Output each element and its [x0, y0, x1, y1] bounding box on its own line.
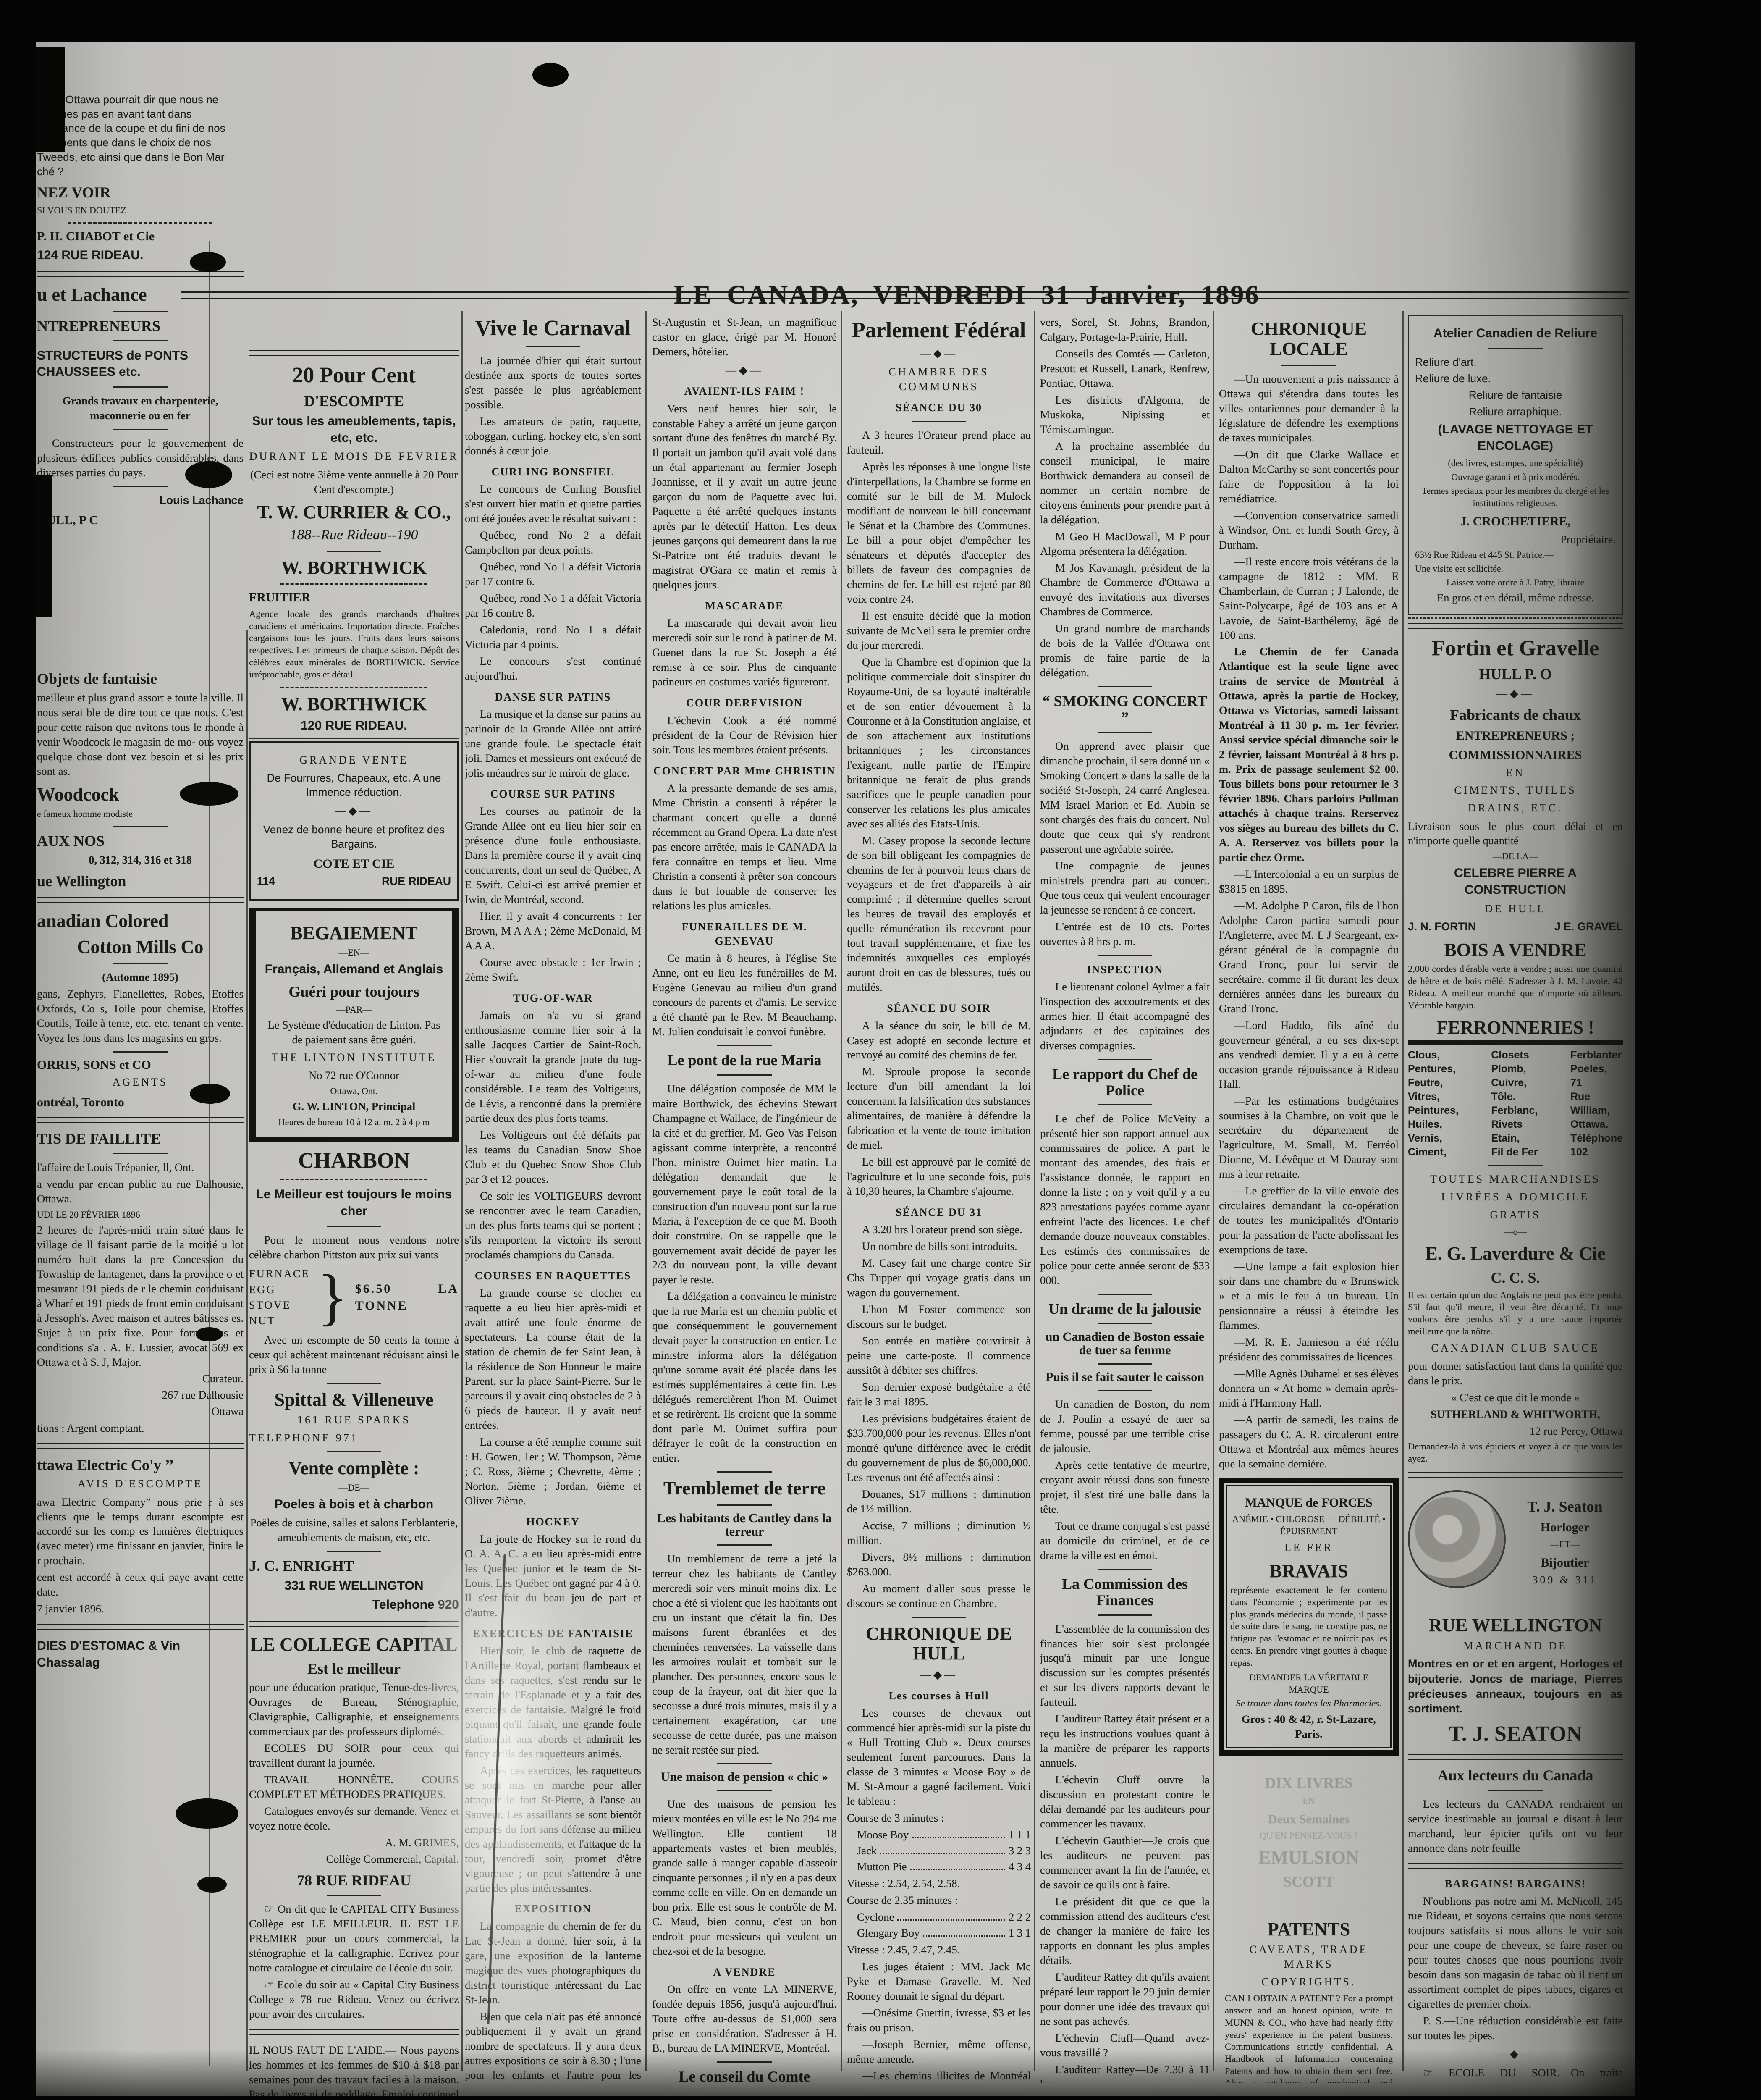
small-centered-line: Heures de bureau 10 à 12 a. m. 2 à 4 p m [262, 1116, 446, 1128]
small-centered-line: UDI LE 20 FÉVRIER 1896 [37, 1208, 244, 1221]
article-headline: BRAVAIS [1230, 1561, 1387, 1581]
race-result-value: 4 3 4 [1009, 1859, 1031, 1874]
article-subheadline: Puis il se fait sauter le caisson [1040, 1370, 1210, 1384]
section-subhead: TUG-OF-WAR [465, 991, 641, 1005]
article-paragraph: 2 heures de l'après-midi rrain situé dan… [37, 1223, 244, 1370]
article-paragraph: Divers, 8½ millions ; diminution $263.00… [847, 1550, 1031, 1579]
article-paragraph: Accise, 7 millions ; diminution ½ millio… [847, 1518, 1031, 1548]
fine-print: CAN I OBTAIN A PATENT ? For a prompt ans… [1225, 1992, 1393, 2083]
article-paragraph: M. Casey fait une charge contre Sir Chs … [847, 1256, 1031, 1300]
article-subheadline: un Canadien de Boston essaie de tuer sa … [1040, 1330, 1210, 1357]
column-rule [841, 311, 842, 2071]
ad-line: Venez de bonne heure et profitez des Bar… [257, 822, 451, 851]
ad-line: STRUCTEURS de PONTS CHAUSSEES etc. [37, 347, 244, 381]
article-paragraph: L'échevin Cluff—Quand avez-vous travaill… [1040, 2031, 1210, 2060]
horse-name: Moose Boy [857, 1827, 909, 1842]
dot-leader [912, 1837, 1005, 1838]
coal-grade: FURNACE [249, 1266, 310, 1281]
section-subhead: COUR DEREVISION [652, 696, 837, 710]
article-headline: 20 Pour Cent [249, 364, 459, 387]
article-headline: ue Wellington [37, 873, 244, 890]
article-paragraph: L'échevin Cluff ouvre la discussion en p… [1040, 1772, 1210, 1831]
article-paragraph: L'auditeur Rattey dit qu'ils avaient pré… [1040, 1970, 1210, 2029]
section-subhead: DANSE SUR PATINS [465, 690, 641, 704]
article-headline: Vive le Carnaval [465, 317, 641, 340]
article-paragraph: tions : Argent comptant. [37, 1421, 244, 1436]
small-centered-line: —EN— [262, 946, 446, 958]
divider [327, 1383, 381, 1384]
coal-grade: NUT [249, 1313, 310, 1328]
ad-box: GRANDE VENTEDe Fourrures, Chapeaux, etc.… [249, 741, 459, 901]
article-paragraph: Un nombre de bills sont introduits. [847, 1239, 1031, 1254]
article-paragraph: —Il reste encore trois vétérans de la ca… [1219, 554, 1399, 643]
article-headline: Guéri pour toujours [262, 984, 446, 1000]
name-pair: auLouis Lachance [37, 493, 244, 508]
ink-blob [190, 252, 226, 272]
article-paragraph: Douanes, $17 millions ; diminution de 1½… [847, 1487, 1031, 1516]
article-paragraph: Le bill est approuvé par le comité de l'… [847, 1155, 1031, 1199]
article-paragraph: a vendu par encan public au rue Dalhousi… [37, 1177, 244, 1206]
race-result-line: Moose Boy1 1 1 [857, 1827, 1031, 1842]
article-paragraph: IL NOUS FAUT DE L'AIDE.— Nous payons les… [249, 2043, 459, 2096]
small-centered-line: Ottawa, Ont. [262, 1085, 446, 1097]
article-subheadline: HULL, P C [37, 514, 244, 527]
hardware-list-item: Rivets [1491, 1118, 1538, 1131]
article-paragraph: L'hon M Foster commence son discours sur… [847, 1302, 1031, 1331]
article-paragraph: Les Voltigeurs ont été défaits par les t… [465, 1128, 641, 1186]
article-paragraph: Avec un escompte de 50 cents la tonne à … [249, 1333, 459, 1377]
article-paragraph: A la pressante demande de ses amis, Mme … [652, 781, 837, 913]
divider [113, 486, 168, 487]
small-centered-line: SI VOUS EN DOUTEZ [37, 204, 244, 216]
small-centered-line: EN [1225, 1795, 1393, 1807]
column-city-news: St-Augustin et St-Jean, un magnifique ca… [652, 313, 837, 2083]
article-paragraph: Pour le moment nous vendons notre célèbr… [249, 1233, 459, 1262]
article-headline: “ SMOKING CONCERT ” [1040, 693, 1210, 726]
article-headline: Cotton Mills Co [37, 937, 244, 957]
column-rule [246, 630, 248, 2071]
right-aligned-line: Curateur. [37, 1371, 244, 1386]
article-paragraph: Une des maisons de pension les mieux mon… [652, 1797, 837, 1958]
double-divider [37, 271, 244, 277]
divider [717, 2061, 772, 2063]
centered-line: Poëles de cuisine, salles et salons Ferb… [249, 1515, 459, 1545]
column-rule [1034, 311, 1035, 2071]
ad-box: MANQUE de FORCESANÉMIE • CHLOROSE — DÉBI… [1219, 1478, 1399, 1756]
pocket-watch-illustration [1408, 1490, 1506, 1588]
article-paragraph: Un tremblement de terre a jeté la terreu… [652, 1551, 837, 1757]
dot-leader [923, 1935, 1005, 1937]
article-headline: Le pont de la rue Maria [652, 1052, 837, 1068]
divider [717, 1790, 772, 1791]
centered-line: (Automne 1895) [37, 970, 244, 984]
article-headline: UI [37, 69, 244, 89]
article-paragraph: Après les réponses à une longue liste d'… [847, 459, 1031, 606]
article-paragraph: gans, Zephyrs, Flanellettes, Robes, Etof… [37, 987, 244, 1045]
article-headline: u et Lachance [37, 285, 244, 305]
article-paragraph: La musique et la danse sur patins au pat… [465, 707, 641, 780]
hardware-list-item: Feutre, [1408, 1076, 1459, 1090]
article-headline: CHRONIQUE DE HULL [847, 1624, 1031, 1664]
dot-leader [910, 1869, 1005, 1870]
double-divider [37, 1443, 244, 1449]
divider [1281, 365, 1336, 366]
article-headline: Spittal & Villeneuve [249, 1390, 459, 1410]
article-headline: TIS DE FAILLITE [37, 1131, 244, 1147]
ad-box: PATENTSCAVEATS, TRADE MARKSCOPYRIGHTS.CA… [1219, 1907, 1399, 2083]
ornament-divider [257, 804, 451, 818]
fine-print: représente exactement le fer contenu dan… [1230, 1584, 1387, 1669]
race-result-line: Cyclone2 2 2 [857, 1910, 1031, 1924]
article-paragraph: Vitesse : 2.54, 2.54, 2.58. [847, 1876, 1031, 1891]
coal-grade: EGG [249, 1282, 310, 1297]
article-headline: DIX LIVRES [1225, 1775, 1393, 1791]
centered-line: Gros : 40 & 42, r. St-Lazare, Paris. [1230, 1712, 1387, 1741]
article-subheadline: P. H. CHABOT et Cie [37, 230, 244, 243]
article-paragraph: Un canadien de Boston, du nom de J. Poul… [1040, 1397, 1210, 1456]
article-paragraph: M. Casey propose la seconde lecture de s… [847, 833, 1031, 995]
article-paragraph: meilleur et plus grand assort e toute la… [37, 690, 244, 779]
page-edge-shadow [1564, 42, 1635, 2096]
article-paragraph: —Onésime Guertin, ivresse, $3 et les fra… [847, 2005, 1031, 2035]
hardware-list-column: Clous,Pentures,Feutre,Vitres,Peintures,H… [1408, 1048, 1459, 1159]
divider [113, 386, 168, 388]
coal-grade-list: FURNACEEGGSTOVENUT [249, 1266, 310, 1328]
ink-blob [197, 1877, 227, 1893]
article-paragraph: Les amateurs de patin, raquette, tobogga… [465, 414, 641, 458]
race-result-line: Jack3 2 3 [857, 1843, 1031, 1858]
divider [1098, 686, 1152, 687]
section-subhead: INSPECTION [1040, 963, 1210, 977]
divider [113, 1153, 168, 1154]
section-subhead: A VENDRE [652, 1965, 837, 1979]
double-divider [37, 1117, 244, 1123]
article-paragraph: Vitesse : 2.45, 2.47, 2.45. [847, 1942, 1031, 1957]
divider [1098, 1104, 1152, 1105]
article-paragraph: —A partir de samedi, les trains de passa… [1219, 1412, 1399, 1471]
divider [717, 1544, 772, 1546]
horse-name: Jack [857, 1843, 877, 1858]
article-paragraph: ☞ Ecole du soir au « Capital City Busine… [249, 1977, 459, 2021]
article-paragraph: —M. Adolphe P Caron, fils de l'hon Adolp… [1219, 898, 1399, 1016]
article-paragraph: On offre en vente LA MINERVE, fondée dep… [652, 1982, 837, 2055]
article-headline: W. BORTHWICK [249, 558, 459, 578]
ad-line: 120 RUE RIDEAU. [249, 717, 459, 734]
wavy-divider [280, 583, 427, 585]
article-paragraph: Après cette tentative de meurtre, croyan… [1040, 1458, 1210, 1517]
article-paragraph: Le chef de Police McVeity a présenté hie… [1040, 1111, 1210, 1288]
brace-glyph [317, 1269, 348, 1326]
section-subhead: CURLING BONSFIEL [465, 465, 641, 479]
divider [1098, 1059, 1152, 1060]
article-headline: AUX NOS [37, 833, 244, 849]
article-paragraph: Québec, rond No 1 a défait Victoria par … [465, 559, 641, 589]
divider [1488, 348, 1543, 349]
dot-leader [897, 1919, 1005, 1921]
article-paragraph: Course avec obstacle : 1er Irwin ; 2ème … [465, 955, 641, 984]
divider [912, 421, 966, 422]
divider [1098, 1569, 1152, 1570]
article-headline: La Commission des Finances [1040, 1576, 1210, 1609]
article-paragraph: L'entrée est de 10 cts. Portes ouvertes … [1040, 919, 1210, 949]
divider [327, 1551, 381, 1552]
article-headline: CHARBON [249, 1149, 459, 1173]
section-subhead: SÉANCE DU 31 [847, 1205, 1031, 1220]
coal-price-table: FURNACEEGGSTOVENUT$6.50 LA TONNE [249, 1266, 459, 1328]
article-paragraph: —Les chemins illicites de Montréal ont é… [847, 2068, 1031, 2083]
dot-leader [880, 1853, 1005, 1854]
column-rule [1402, 311, 1404, 2071]
masthead-rule [181, 291, 1629, 299]
race-result-line: Mutton Pie4 3 4 [857, 1859, 1031, 1874]
column-smoking-concert: vers, Sorel, St. Johns, Brandon, Calgary… [1040, 313, 1210, 2083]
small-centered-line: DEMANDER LA VÉRITABLE MARQUE [1230, 1671, 1387, 1696]
caps-line: CHAMBRE DES COMMUNES [847, 365, 1031, 394]
caps-line: DURANT LE MOIS DE FEVRIER [249, 449, 459, 464]
article-subheadline: MANQUE de FORCES [1230, 1496, 1387, 1509]
divider [113, 1051, 168, 1053]
article-subheadline: Une maison de pension « chic » [652, 1770, 837, 1784]
ad-line: Français, Allemand et Anglais [262, 961, 446, 978]
caps-line: CAVEATS, TRADE MARKS [1225, 1942, 1393, 1971]
centered-line: G. W. LINTON, Principal [262, 1099, 446, 1114]
price-value: $6.50 LA TONNE [355, 1281, 459, 1314]
hardware-list-item: Clous, [1408, 1048, 1459, 1062]
article-headline: Parlement Fédéral [847, 319, 1031, 342]
name-left: 114 [257, 874, 275, 889]
wavy-divider [280, 1179, 427, 1180]
small-centered-line: —DE— [249, 1481, 459, 1494]
caps-line: 161 RUE SPARKS [249, 1413, 459, 1427]
divider [1488, 1790, 1543, 1791]
article-paragraph: Le concours s'est continué aujourd'hui. [465, 654, 641, 683]
caps-line: THE LINTON INSTITUTE [262, 1050, 446, 1065]
article-paragraph: Les districts d'Algoma, de Muskoka, Nipi… [1040, 393, 1210, 437]
ad-line: Telephone 920 [249, 1596, 459, 1613]
article-subheadline: ORRIS, SONS et CO [37, 1058, 244, 1072]
ink-blob [176, 1798, 238, 1829]
film-edge-mark [532, 63, 569, 87]
article-paragraph: —Lord Haddo, fils aîné du gouverneur gén… [1219, 1018, 1399, 1092]
column-chronique-locale: CHRONIQUE LOCALE—Un mouvement a pris nai… [1219, 313, 1399, 2083]
divider [113, 826, 168, 827]
caps-line: LE FER [1230, 1541, 1387, 1555]
hardware-list-item: Huiles, [1408, 1118, 1459, 1131]
hardware-list-item: Tôle. [1491, 1090, 1538, 1104]
section-subhead: SÉANCE DU SOIR [847, 1001, 1031, 1016]
divider [1098, 1363, 1152, 1365]
article-paragraph: Course de 2.35 minutes : [847, 1893, 1031, 1908]
caps-line: TELEPHONE 971 [249, 1431, 459, 1445]
article-paragraph: —M. R. E. Jamieson a été réélu président… [1219, 1335, 1399, 1364]
small-centered-line: —PAR— [262, 1003, 446, 1016]
divider [717, 1045, 772, 1046]
hardware-list-item: Peintures, [1408, 1104, 1459, 1118]
article-paragraph: Il est ensuite décidé que la motion suiv… [847, 609, 1031, 653]
hardware-list-item: Ciment, [1408, 1145, 1459, 1159]
divider [526, 346, 580, 347]
divider [1098, 732, 1152, 733]
article-headline: Le conseil du Comte [652, 2068, 837, 2083]
race-result-line: Glengary Boy1 3 1 [857, 1926, 1031, 1940]
ad-line: Dans Ottawa pourrait dir que nous ne som… [37, 92, 244, 179]
newspaper-page: LE CANADA, VENDREDI 31 Janvier, 1896 UID… [36, 42, 1635, 2096]
microfilm-background: LE CANADA, VENDREDI 31 Janvier, 1896 UID… [0, 0, 1761, 2100]
article-paragraph: La grande course se clocher en raquette … [465, 1286, 641, 1433]
column-parlement: Parlement FédéralCHAMBRE DES COMMUNESSÉA… [847, 313, 1031, 2083]
ad-line: Sur tous les ameublements, tapis, etc, e… [249, 413, 459, 446]
hardware-list-item: Cuivre, [1491, 1076, 1538, 1090]
section-subhead: AVAIENT-ILS FAIM ! [652, 384, 837, 399]
article-paragraph: L'échevin Cook a été nommé président de … [652, 713, 837, 757]
hardware-list-item: Vitres, [1408, 1090, 1459, 1104]
article-paragraph: vers, Sorel, St. Johns, Brandon, Calgary… [1040, 315, 1210, 344]
caps-line: COPYRIGHTS. [1225, 1975, 1393, 1989]
double-divider [249, 2029, 459, 2035]
article-paragraph: L'assemblée de la commission des finance… [1040, 1622, 1210, 1710]
article-paragraph: —Joseph Bernier, même offense, même amen… [847, 2037, 1031, 2066]
section-subhead: MASCARADE [652, 599, 837, 613]
article-headline: Objets de fantaisie [37, 671, 244, 687]
ink-blob [196, 1327, 223, 1341]
centered-line: (Ceci est notre 3ième vente annuelle à 2… [249, 467, 459, 497]
article-paragraph: Son entrée en matière couvrirait à peine… [847, 1333, 1031, 1378]
article-paragraph: A la prochaine assemblée du conseil muni… [1040, 439, 1210, 527]
article-paragraph: Un grand nombre de marchands de bois de … [1040, 621, 1210, 680]
small-centered-line: QU'EN PENSEZ-VOUS ? [1225, 1830, 1393, 1842]
article-headline: Le rapport du Chef de Police [1040, 1066, 1210, 1099]
article-subheadline: COTE ET CIE [257, 857, 451, 871]
article-headline: Un drame de la jalousie [1040, 1301, 1210, 1317]
article-headline: anadian Colored [37, 911, 244, 931]
ink-blob [180, 782, 238, 806]
race-result-value: 2 2 2 [1009, 1910, 1031, 1924]
article-paragraph: —Une lampe a fait explosion hier soir da… [1219, 1259, 1399, 1333]
section-subhead: CONCERT PAR Mme CHRISTIN [652, 764, 837, 778]
article-headline: Vente complète : [249, 1458, 459, 1478]
article-paragraph: —Mlle Agnès Duhamel et ses élèves donner… [1219, 1366, 1399, 1410]
article-paragraph: —Par les estimations budgétaires soumise… [1219, 1094, 1399, 1182]
centered-line: Grands travaux en charpenterie, maconner… [37, 394, 244, 423]
double-divider [37, 1624, 244, 1630]
article-paragraph: Vers neuf heures hier soir, le constable… [652, 402, 837, 593]
article-subheadline: Deux Semaines [1225, 1813, 1393, 1826]
name-pair: 114RUE RIDEAU [257, 874, 451, 889]
ornament-divider [652, 363, 837, 378]
name-right: RUE RIDEAU [382, 874, 451, 889]
ornament-divider [847, 1668, 1031, 1682]
hardware-list-item: Etain, [1491, 1131, 1538, 1145]
double-divider [249, 350, 459, 356]
article-paragraph: L'échevin Gauthier—Je crois que les audi… [1040, 1833, 1210, 1892]
article-paragraph: La journée d'hier qui était surtout dest… [465, 353, 641, 412]
divider [1098, 1614, 1152, 1616]
divider [113, 963, 168, 964]
section-subhead: HOCKEY [465, 1515, 641, 1529]
fine-print: Agence locale des grands marchands d'huî… [249, 608, 459, 681]
section-subhead: Les courses à Hull [847, 1689, 1031, 1703]
article-paragraph: La délégation a convaincu le ministre qu… [652, 1289, 837, 1465]
article-paragraph: On apprend avec plaisir que dimanche pro… [1040, 739, 1210, 856]
article-paragraph: Jamais on n'a vu si grand enthousiasme c… [465, 1008, 641, 1126]
divider [1098, 1390, 1152, 1391]
name-left: J. N. FORTIN [1408, 919, 1476, 934]
divider [1098, 955, 1152, 956]
divider [1098, 1323, 1152, 1324]
article-paragraph: Les prévisions budgétaires étaient de $3… [847, 1411, 1031, 1485]
article-paragraph: L'auditeur Rattey—De 7.30 à 11 hrs. [1040, 2062, 1210, 2083]
wavy-divider [280, 687, 427, 688]
race-result-value: 1 1 1 [1009, 1827, 1031, 1842]
ad-line: De Fourrures, Chapeaux, etc. A une Immen… [257, 771, 451, 800]
hardware-list-column: ClosetsPlomb,Cuivre,Tôle.Ferblanc,Rivets… [1491, 1048, 1538, 1159]
article-paragraph: A 3.20 hrs l'orateur prend son siège. [847, 1222, 1031, 1237]
article-paragraph: La mascarade qui devait avoir lieu mercr… [652, 616, 837, 689]
article-headline: ttawa Electric Co'y ’’ [37, 1457, 244, 1473]
article-headline: SCOTT [1225, 1874, 1393, 1890]
race-result-value: 3 2 3 [1009, 1843, 1031, 1858]
article-paragraph: Québec, rond No 1 a défait Victoria par … [465, 591, 641, 620]
address-line: 188--Rue Rideau--190 [249, 526, 459, 545]
ornament-divider [847, 346, 1031, 361]
article-paragraph: St-Augustin et St-Jean, un magnifique ca… [652, 315, 837, 359]
article-paragraph: Que la Chambre est d'opinion que la poli… [847, 655, 1031, 831]
caps-line: GRANDE VENTE [257, 753, 451, 767]
article-paragraph: Au moment d'aller sous presse le discour… [847, 1581, 1031, 1611]
name-right: Louis Lachance [160, 493, 244, 508]
film-edge-mark [36, 47, 65, 152]
divider [327, 1226, 381, 1227]
section-subhead: SÉANCE DU 30 [847, 401, 1031, 415]
article-subheadline: FRUITIER [249, 591, 459, 604]
article-headline: CHRONIQUE LOCALE [1219, 319, 1399, 359]
column-rule [645, 311, 647, 2071]
small-centered-line: ANÉMIE • CHLOROSE — DÉBILITÉ • ÉPUISEMEN… [1230, 1513, 1387, 1537]
article-headline: W. BORTHWICK [249, 694, 459, 714]
article-paragraph: —Convention conservatrice samedi à Winds… [1219, 508, 1399, 552]
article-paragraph: l'affaire de Louis Trépanier, ll, Ont. [37, 1160, 244, 1175]
italic-line: Se trouve dans toutes les Pharmacies. [1230, 1697, 1387, 1710]
article-paragraph: Le président dit que ce que la commissio… [1040, 1894, 1210, 1968]
divider [717, 1763, 772, 1764]
article-paragraph: Course de 3 minutes : [847, 1811, 1031, 1825]
article-paragraph: —On dit que Clarke Wallace et Dalton McC… [1219, 447, 1399, 506]
horse-name: Glengary Boy [857, 1926, 920, 1940]
divider [327, 1895, 381, 1896]
article-paragraph: M Geo H MacDowall, M P pour Algoma prése… [1040, 529, 1210, 559]
wavy-divider [68, 222, 212, 224]
article-paragraph: Le concours de Curling Bonsfiel s'est ou… [465, 482, 641, 526]
article-paragraph: Les courses au patinoir de la Grande All… [465, 804, 641, 907]
article-paragraph: Ce soir les VOLTIGEURS devront se rencon… [465, 1189, 641, 1262]
film-edge-mark [36, 475, 52, 617]
divider [717, 1471, 772, 1473]
article-paragraph: M Jos Kavanagh, président de la Chambre … [1040, 561, 1210, 619]
section-subhead: COURSE SUR PATINS [465, 787, 641, 801]
caps-line: AVIS D'ESCOMPTE [37, 1477, 244, 1491]
article-headline: D'ESCOMPTE [249, 393, 459, 409]
article-paragraph: M. Sproule propose la seconde lecture d'… [847, 1064, 1031, 1152]
ink-blob [190, 1084, 230, 1104]
centered-line: Le Système d'éducation de Linton. Pas de… [262, 1018, 446, 1047]
article-paragraph: Hier, il y avait 4 concurrents : 1er Bro… [465, 909, 641, 953]
article-paragraph: Ce matin à 8 heures, à l'église Ste Anne… [652, 951, 837, 1039]
article-paragraph: Le Chemin de fer Canada Atlantique est l… [1219, 644, 1399, 865]
divider [327, 551, 381, 552]
right-aligned-line: 267 rue Dalhousie [37, 1388, 244, 1402]
article-paragraph: Une compagnie de jeunes ministrels prend… [1040, 858, 1210, 917]
ad-box: BEGAIEMENT—EN—Français, Allemand et Angl… [249, 908, 459, 1142]
